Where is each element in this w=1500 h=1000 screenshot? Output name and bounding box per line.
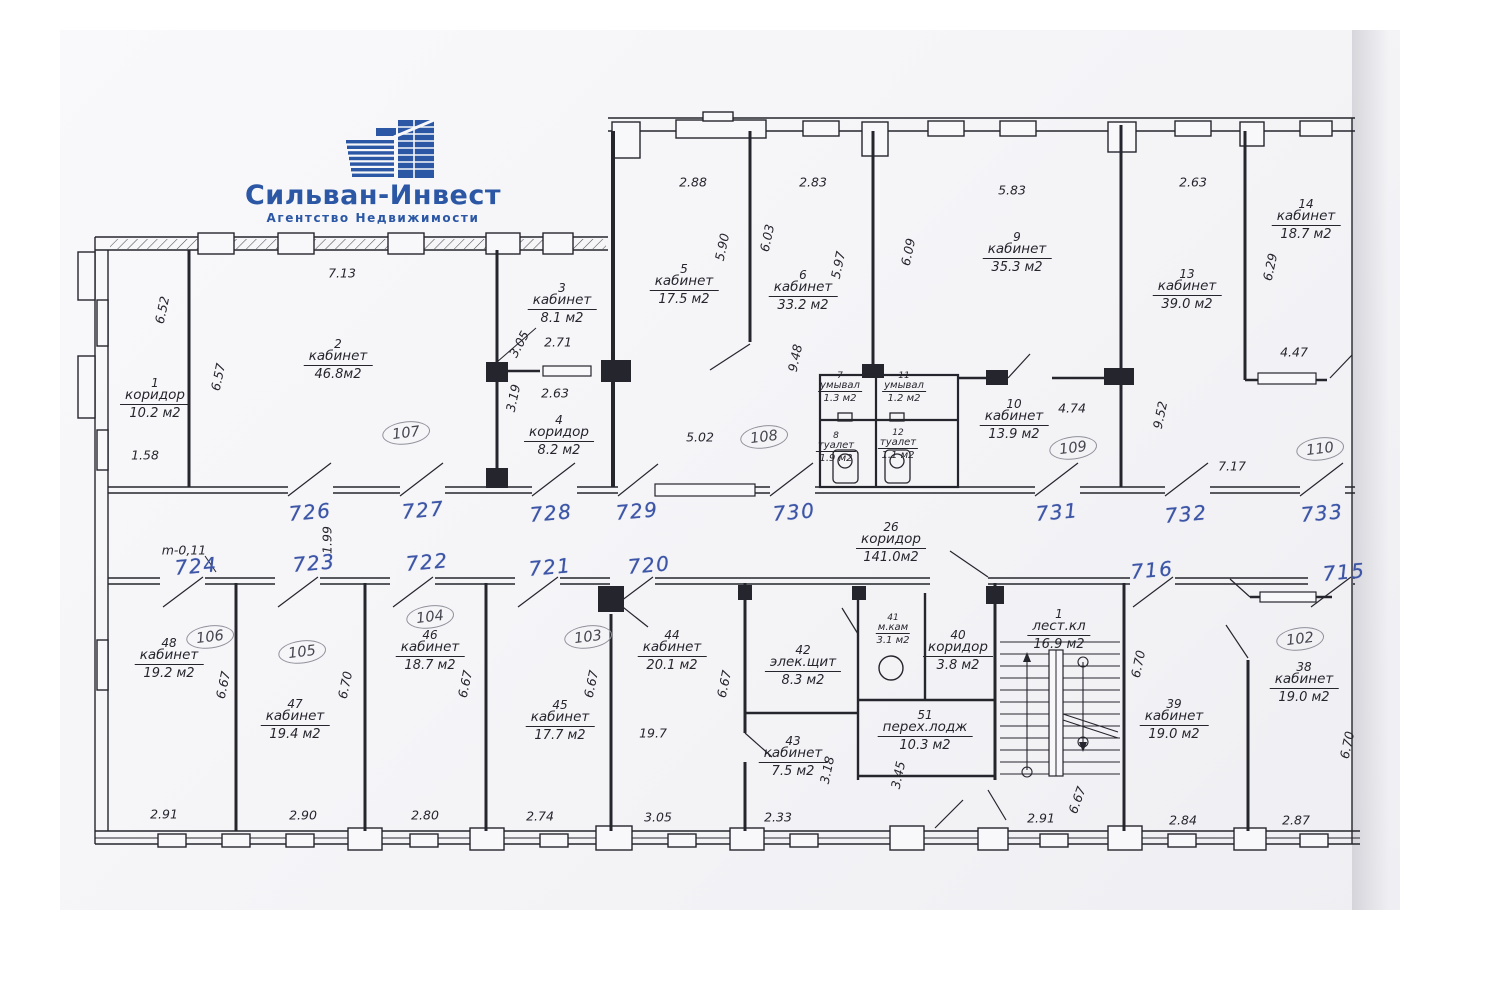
room-area: 19.0 м2 — [1140, 726, 1209, 741]
dimension-label: 2.84 — [1169, 813, 1197, 828]
room-label-7: 7умывал1.3 м2 — [818, 372, 862, 404]
room-name: кабинет — [1270, 673, 1339, 689]
dimension-label: 2.91 — [1027, 811, 1055, 826]
room-area: 39.0 м2 — [1153, 296, 1222, 311]
handwritten-door-number: 732 — [1164, 500, 1209, 528]
dimension-label: 7.17 — [1218, 459, 1246, 474]
dimension-label: 2.63 — [1179, 175, 1207, 190]
room-name: кабинет — [759, 747, 828, 763]
room-area: 19.0 м2 — [1270, 689, 1339, 704]
room-label-5: 5кабинет17.5 м2 — [650, 263, 719, 306]
room-area: 1.2 м2 — [882, 392, 926, 404]
logo-title: Сильван-Инвест — [238, 182, 508, 210]
dimension-label: 2.33 — [764, 810, 792, 825]
dimension-label: 2.83 — [799, 175, 827, 190]
room-area: 3.1 м2 — [876, 634, 910, 646]
logo-subtitle: Агентство Недвижимости — [238, 211, 508, 225]
room-label-12: 12туалет1.1 м2 — [878, 429, 918, 461]
room-name: перех.лодж — [878, 721, 973, 737]
room-area: 33.2 м2 — [769, 297, 838, 312]
room-area: 3.8 м2 — [923, 657, 993, 672]
room-name: м.кам — [876, 623, 910, 634]
room-area: 8.2 м2 — [524, 442, 594, 457]
room-area: 1.3 м2 — [818, 392, 862, 404]
handwritten-door-number: 721 — [528, 553, 573, 581]
handwritten-door-number: 729 — [615, 497, 660, 525]
floorplan-linework — [0, 0, 1500, 1000]
room-area: 1.9 м2 — [816, 452, 856, 464]
room-label-9: 9кабинет35.3 м2 — [983, 231, 1052, 274]
room-label-43: 43кабинет7.5 м2 — [759, 735, 828, 778]
room-area: 17.7 м2 — [526, 727, 595, 742]
handwritten-door-number: 724 — [174, 552, 219, 580]
room-label-38: 38кабинет19.0 м2 — [1270, 661, 1339, 704]
room-name: кабинет — [526, 711, 595, 727]
room-label-40: 40коридор3.8 м2 — [923, 629, 993, 672]
room-label-2: 2кабинет46.8м2 — [304, 338, 373, 381]
room-label-39: 39кабинет19.0 м2 — [1140, 698, 1209, 741]
dimension-label: 5.02 — [686, 430, 714, 445]
room-name: кабинет — [396, 641, 465, 657]
room-name: кабинет — [638, 641, 707, 657]
room-name: кабинет — [650, 275, 719, 291]
room-label-10: 10кабинет13.9 м2 — [980, 398, 1049, 441]
dimension-label: 2.91 — [150, 807, 178, 822]
room-name: коридор — [524, 426, 594, 442]
room-name: туалет — [816, 441, 856, 452]
room-label-8: 8туалет1.9 м2 — [816, 432, 856, 464]
handwritten-door-number: 733 — [1300, 499, 1345, 527]
room-label-14: 14кабинет18.7 м2 — [1272, 198, 1341, 241]
room-name: коридор — [923, 641, 993, 657]
dimension-label: 7.13 — [328, 266, 356, 281]
dimension-label: 2.88 — [679, 175, 707, 190]
room-name: кабинет — [983, 243, 1052, 259]
room-name: кабинет — [1140, 710, 1209, 726]
floor-plan-page: Сильван-Инвест Агентство Недвижимости 1к… — [0, 0, 1500, 1000]
dimension-label: 2.63 — [541, 386, 569, 401]
agency-logo: Сильван-Инвест Агентство Недвижимости — [238, 108, 508, 225]
dimension-label: 2.71 — [544, 335, 572, 350]
room-label-3: 3кабинет8.1 м2 — [528, 282, 597, 325]
dimension-label: 4.74 — [1058, 401, 1086, 416]
dimension-label: 4.47 — [1280, 345, 1308, 360]
room-name: умывал — [882, 381, 926, 392]
room-label-47: 47кабинет19.4 м2 — [261, 698, 330, 741]
room-area: 35.3 м2 — [983, 259, 1052, 274]
handwritten-door-number: 726 — [288, 498, 333, 526]
handwritten-door-number: 730 — [772, 498, 817, 526]
room-area: 10.3 м2 — [878, 737, 973, 752]
room-name: кабинет — [304, 350, 373, 366]
handwritten-door-number: 727 — [401, 496, 446, 524]
dimension-label: 2.87 — [1282, 813, 1310, 828]
room-area: 18.7 м2 — [396, 657, 465, 672]
room-name: коридор — [120, 389, 190, 405]
handwritten-door-number: 715 — [1322, 558, 1367, 586]
room-name: элек.щит — [765, 656, 841, 672]
room-area: 20.1 м2 — [638, 657, 707, 672]
handwritten-door-number: 723 — [292, 549, 337, 577]
room-label-41: 41м.кам3.1 м2 — [876, 614, 910, 646]
room-area: 8.1 м2 — [528, 310, 597, 325]
dimension-label: 1.58 — [131, 448, 159, 463]
room-name: кабинет — [1272, 210, 1341, 226]
room-area: 13.9 м2 — [980, 426, 1049, 441]
room-area: 8.3 м2 — [765, 672, 841, 687]
room-label-42: 42элек.щит8.3 м2 — [765, 644, 841, 687]
room-label-44: 44кабинет20.1 м2 — [638, 629, 707, 672]
room-name: кабинет — [1153, 280, 1222, 296]
room-label-51: 51перех.лодж10.3 м2 — [878, 709, 973, 752]
room-area: 46.8м2 — [304, 366, 373, 381]
room-name: лест.кл — [1027, 620, 1090, 636]
room-area: 10.2 м2 — [120, 405, 190, 420]
room-name: кабинет — [769, 281, 838, 297]
room-name: туалет — [878, 438, 918, 449]
room-label-45: 45кабинет17.7 м2 — [526, 699, 595, 742]
room-label-4: 4коридор8.2 м2 — [524, 414, 594, 457]
room-area: 17.5 м2 — [650, 291, 719, 306]
room-label-26: 26коридор141.0м2 — [856, 521, 926, 564]
dimension-label: 19.7 — [639, 726, 667, 741]
room-name: кабинет — [261, 710, 330, 726]
dimension-label: 3.05 — [644, 810, 672, 825]
dimension-label: 2.74 — [526, 809, 554, 824]
handwritten-door-number: 720 — [627, 551, 672, 579]
room-name: умывал — [818, 381, 862, 392]
room-name: кабинет — [528, 294, 597, 310]
room-name: коридор — [856, 533, 926, 549]
dimension-label: 2.80 — [411, 808, 439, 823]
room-label-1: 1коридор10.2 м2 — [120, 377, 190, 420]
handwritten-door-number: 731 — [1035, 498, 1080, 526]
dimension-label: 5.83 — [998, 183, 1026, 198]
room-label-13: 13кабинет39.0 м2 — [1153, 268, 1222, 311]
handwritten-door-number: 728 — [529, 499, 574, 527]
room-area: 18.7 м2 — [1272, 226, 1341, 241]
room-name: кабинет — [980, 410, 1049, 426]
dimension-label: 2.90 — [289, 808, 317, 823]
room-name: кабинет — [135, 649, 204, 665]
room-area: 19.2 м2 — [135, 665, 204, 680]
room-area: 16.9 м2 — [1027, 636, 1090, 651]
room-label-11: 11умывал1.2 м2 — [882, 372, 926, 404]
room-area: 141.0м2 — [856, 549, 926, 564]
room-label-46: 46кабинет18.7 м2 — [396, 629, 465, 672]
handwritten-door-number: 716 — [1130, 556, 1175, 584]
room-label-1: 1лест.кл16.9 м2 — [1027, 608, 1090, 651]
room-area: 1.1 м2 — [878, 449, 918, 461]
room-area: 19.4 м2 — [261, 726, 330, 741]
handwritten-door-number: 722 — [405, 548, 450, 576]
